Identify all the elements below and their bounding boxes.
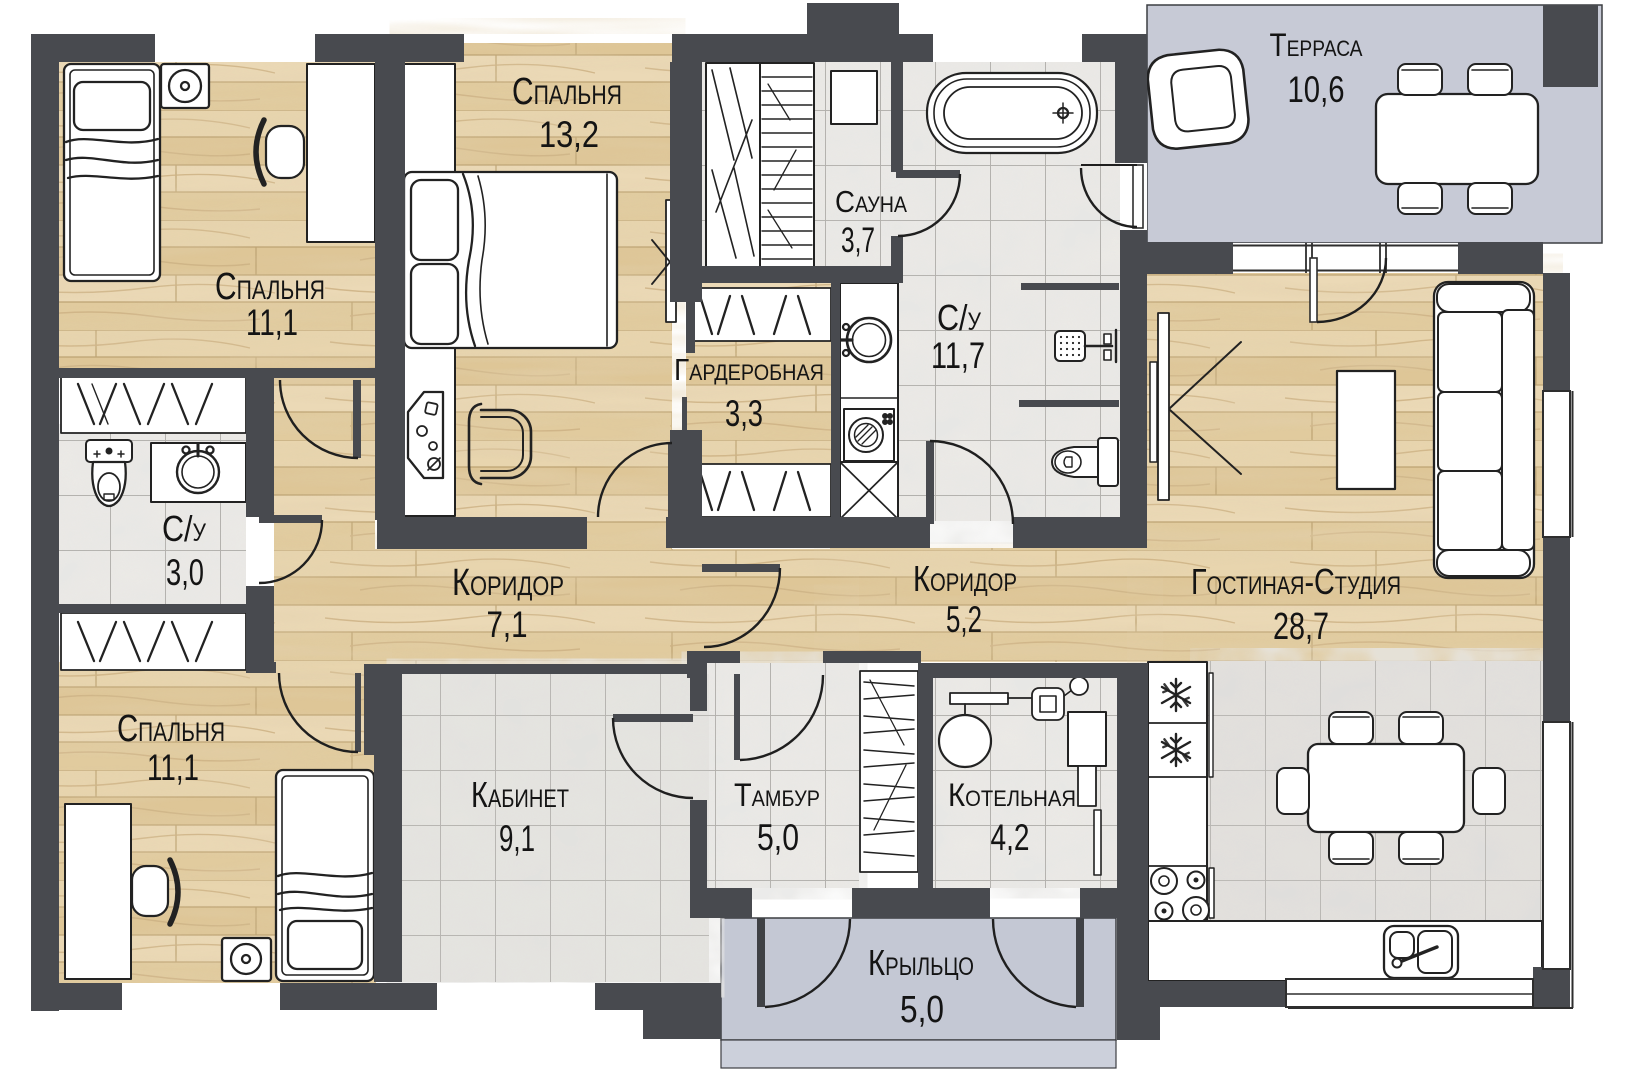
svg-text:С/у: С/у [937, 297, 981, 338]
svg-text:4,2: 4,2 [991, 817, 1030, 858]
svg-text:7,1: 7,1 [487, 604, 528, 645]
svg-text:Тамбур: Тамбур [734, 777, 820, 813]
svg-text:Кабинет: Кабинет [471, 774, 569, 815]
svg-text:5,0: 5,0 [757, 817, 799, 858]
svg-text:10,6: 10,6 [1288, 69, 1345, 110]
svg-text:9,1: 9,1 [499, 818, 535, 859]
svg-text:Коридор: Коридор [913, 558, 1017, 599]
svg-text:5,0: 5,0 [900, 989, 944, 1031]
svg-text:С/у: С/у [162, 508, 206, 549]
svg-text:13,2: 13,2 [539, 114, 599, 155]
svg-text:11,1: 11,1 [246, 302, 298, 343]
svg-text:Спальня: Спальня [117, 708, 225, 750]
svg-text:Сауна: Сауна [835, 184, 907, 219]
svg-text:Спальня: Спальня [512, 71, 622, 113]
svg-text:Крыльцо: Крыльцо [868, 942, 974, 983]
svg-text:11,1: 11,1 [147, 747, 199, 788]
svg-text:Терраса: Терраса [1270, 27, 1363, 63]
svg-text:3,3: 3,3 [725, 393, 763, 434]
svg-text:3,0: 3,0 [166, 552, 204, 593]
svg-text:Котельная: Котельная [948, 777, 1076, 813]
svg-text:Гостиная-Студия: Гостиная-Студия [1191, 561, 1401, 602]
svg-text:11,7: 11,7 [931, 335, 985, 376]
svg-text:Коридор: Коридор [452, 562, 564, 604]
svg-text:3,7: 3,7 [841, 221, 875, 260]
svg-text:5,2: 5,2 [946, 599, 982, 640]
svg-text:Гардеробная: Гардеробная [674, 352, 824, 387]
svg-text:28,7: 28,7 [1273, 606, 1329, 648]
